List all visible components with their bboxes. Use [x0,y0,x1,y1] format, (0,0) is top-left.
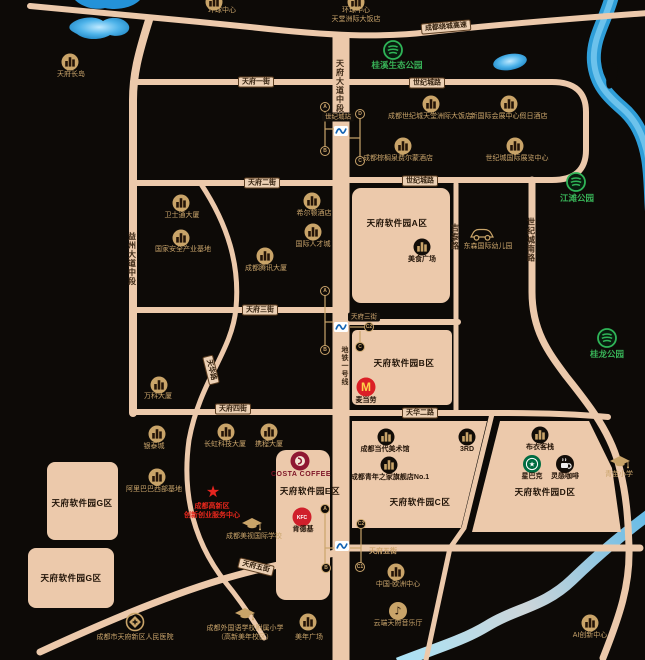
poi-label-line: 银泰城 [144,443,165,452]
poi-label-food-plaza: 美食广场 [408,256,436,265]
road-label: 世纪城路 [409,78,445,89]
district-label-district-d: 天府软件园D区 [515,486,576,498]
poi-label-line: 新国际会展中心假日酒店 [471,113,548,122]
highlight-note-line: 成都高新区 [184,502,240,511]
poi-label-ctrip-tower: 携程大厦 [255,441,283,450]
district-label-district-e: 天府软件园E区 [280,485,340,497]
poi-label-mcdonalds: 麦当劳 [356,397,377,406]
poi-label-line: 东森国际幼儿园 [464,243,513,252]
road-label: 天府三街 [348,313,380,322]
poi-label-costa-coffee: COSTA COFFEE [271,471,331,480]
poi-meishi-international-school[interactable] [236,514,268,534]
svg-text:♪: ♪ [394,605,401,618]
poi-label-tianfu-changdao: 天府长岛 [57,71,85,80]
poi-label-foreign-language-primary-school: 成都外国语学校附属小学（高新美年校区） [207,625,284,642]
poi-label-dongsen-kindergarten: 东森国际幼儿园 [464,243,513,252]
poi-label-tianfu-new-district-peoples-hospital: 成都市天府新区人民医院 [97,634,174,643]
poi-label-national-security-industry-base: 国家安全产业基地 [155,246,211,255]
metro-exit-c2[interactable]: C2 [356,519,366,529]
metro-exit-b[interactable]: B [321,563,331,573]
district-label-district-b: 天府软件园B区 [374,357,435,369]
park-label-guixi-eco-park: 桂溪生态公园 [371,59,422,71]
metro-logo-icon [334,322,348,332]
road-label: 吉泰路 [450,224,461,251]
poi-label-line: 成都美视国际学校 [226,533,282,542]
poi-label-line: 环球中心 [332,7,381,16]
road-label: 天府大道中段 [335,59,346,113]
map-base-layer [0,0,645,660]
poi-label-vanke-tower: 万科大厦 [144,393,172,402]
poi-label-fairmont-hotel: 成都棕榈泉费尔蒙酒店 [363,155,433,164]
poi-label-holiday-inn-new-convention: 新国际会展中心假日酒店 [471,113,548,122]
poi-label-line: 携程大厦 [255,441,283,450]
metro-exit-c2[interactable]: C2 [364,322,374,332]
poi-label-china-europe-center: 中国-欧洲中心 [376,581,420,590]
poi-label-line: 肯德基 [293,526,314,535]
poi-label-line: 星巴克 [522,473,543,482]
poi-label-meishi-international-school: 成都美视国际学校 [226,533,282,542]
poi-label-international-talent-city: 国际人才城 [296,241,331,250]
graduation-cap-icon [604,452,636,472]
district-a-block [352,188,450,303]
metro-logo-icon [335,541,349,551]
poi-label-line: 成都外国语学校附属小学 [207,625,284,634]
poi-tianfu-new-district-peoples-hospital[interactable] [121,608,149,636]
poi-label-line: 成都青年之家旗舰店No.1 [351,474,429,483]
metro-exit-a[interactable]: A [320,286,330,296]
park-label-guilong-park: 桂龙公园 [590,348,624,360]
building-icon [295,609,321,635]
district-label-district-a: 天府软件园A区 [367,217,428,229]
metro-exit-a[interactable]: A [320,102,330,112]
poi-label-century-city-intercontinental: 成都世纪城天堂洲际大饭店 [388,113,472,122]
poi-label-line: 阿里巴巴西部基地 [126,486,182,495]
poi-label-line: 世纪城国际展览中心 [486,155,549,164]
graduation-cap-icon [236,514,268,534]
poi-label-huanqiu-intercontinental-hotel: 环球中心天堂洲际大饭店 [332,7,381,24]
poi-label-line: 3RD [460,446,474,455]
northwest-pond-top [75,0,140,9]
northwest-lake [69,18,129,40]
poi-label-hilton-hotel: 希尔顿酒店 [297,210,332,219]
poi-label-line: 美年广场 [295,634,323,643]
metro-line-label: 地铁一号线 [339,346,349,386]
poi-dongsen-kindergarten[interactable] [466,224,498,244]
poi-label-weishitong-tower: 卫士通大厦 [165,212,200,221]
poi-label-kfc: 肯德基 [293,526,314,535]
poi-label-line: 美食广场 [408,256,436,265]
poi-label-line: 天府长岛 [57,71,85,80]
poi-label-line: 成都腾讯大厦 [245,265,287,274]
road-label: 天府一街 [238,77,274,88]
svg-text:★: ★ [529,460,535,468]
poi-meinian-plaza[interactable] [295,609,321,635]
district-label-district-g1: 天府软件园G区 [51,497,112,509]
road-label: 天府二街 [244,178,280,189]
poi-label-line: AI创新中心 [573,632,608,641]
district-label-district-g2: 天府软件园G区 [40,572,101,584]
poi-label-starbucks: 星巴克 [522,473,543,482]
poi-label-linggan-coffee: 灵感咖啡 [551,473,579,482]
poi-label-changhong-tech-tower: 长虹科技大厦 [204,441,246,450]
poi-label-line: 中国-欧洲中心 [376,581,420,590]
poi-label-line: 国家安全产业基地 [155,246,211,255]
kindergarten-car-icon [466,224,498,244]
poi-foreign-language-primary-school[interactable] [229,604,261,624]
poi-label-tencent-tower: 成都腾讯大厦 [245,265,287,274]
metro-station-logo [334,322,348,332]
road-label: 天华二路 [402,408,438,419]
poi-label-line: 云端天府音乐厅 [374,620,423,629]
hospital-icon [121,608,149,636]
poi-label-huanqiu-center: 环球中心 [208,7,236,16]
poi-label-line: 灵感咖啡 [551,473,579,482]
poi-qingmiao-primary-school[interactable] [604,452,636,472]
poi-label-alibaba-west-base: 阿里巴巴西部基地 [126,486,182,495]
poi-label-line: 万科大厦 [144,393,172,402]
district-label-district-c: 天府软件园C区 [390,496,451,508]
metro-logo-icon [334,126,348,136]
tianfu-software-park-map: 天府软件园A区天府软件园B区天府软件园C区天府软件园D区天府软件园E区天府软件园… [0,0,645,660]
road-label: 世纪城路 [402,176,438,187]
park-label-jiangtan-park: 江滩公园 [560,192,594,204]
road-label: 天府四街 [215,404,251,415]
road-label: 天府五街 [369,546,397,556]
metro-station-plate: 世纪城站 [322,113,354,122]
highlight-star-icon: ★ [206,485,220,501]
graduation-cap-icon [229,604,261,624]
poi-label-ai-innovation-center: AI创新中心 [573,632,608,641]
poi-label-meinian-plaza: 美年广场 [295,634,323,643]
metro-exit-b[interactable]: B [320,345,330,355]
highlight-note-line: 创新创业服务中心 [184,511,240,520]
svg-text:KFC: KFC [297,515,308,521]
poi-label-yintai-city: 银泰城 [144,443,165,452]
poi-label-line: 成都市天府新区人民医院 [97,634,174,643]
poi-label-line: 青苗小学 [605,471,633,480]
yizhou-avenue-road [133,20,149,413]
poi-label-line: COSTA COFFEE [271,471,331,480]
poi-label-line: 麦当劳 [356,397,377,406]
poi-label-yunduan-tianfu-music-hall: 云端天府音乐厅 [374,620,423,629]
poi-label-line: （高新美年校区） [207,634,284,643]
road-label: 世纪城南路 [526,218,537,263]
tianhua-2nd-road [341,413,608,417]
poi-label-line: 长虹科技大厦 [204,441,246,450]
poi-label-century-city-exhibition-center: 世纪城国际展览中心 [486,155,549,164]
century-city-south-road [532,180,629,658]
poi-label-line: 卫士通大厦 [165,212,200,221]
road-label: 天府三街 [242,305,278,316]
metro-exit-c1[interactable]: C1 [355,562,365,572]
poi-label-line: 希尔顿酒店 [297,210,332,219]
highlight-note: 成都高新区创新创业服务中心 [184,502,240,520]
poi-label-line: 国际人才城 [296,241,331,250]
metro-exit-b[interactable]: B [320,146,330,156]
poi-label-line: 成都棕榈泉费尔蒙酒店 [363,155,433,164]
metro-station-logo [334,126,348,136]
metro-exit-d[interactable]: D [355,109,365,119]
svg-text:M: M [361,380,371,394]
metro-exit-c[interactable]: C [355,342,365,352]
poi-label-jrd: 3RD [460,446,474,455]
century-city-road-loop [341,82,586,180]
metro-exit-a[interactable]: A [320,504,330,514]
poi-label-line: 成都世纪城天堂洲际大饭店 [388,113,472,122]
poi-label-line: 天堂洲际大饭店 [332,16,381,25]
small-lake [492,51,528,73]
poi-label-qingmiao-primary-school: 青苗小学 [605,471,633,480]
poi-label-line: 环球中心 [208,7,236,16]
road-label: 益州大道中段 [127,232,138,286]
poi-label-youth-home-flagship: 成都青年之家旗舰店No.1 [351,474,429,483]
metro-station-logo [335,541,349,551]
